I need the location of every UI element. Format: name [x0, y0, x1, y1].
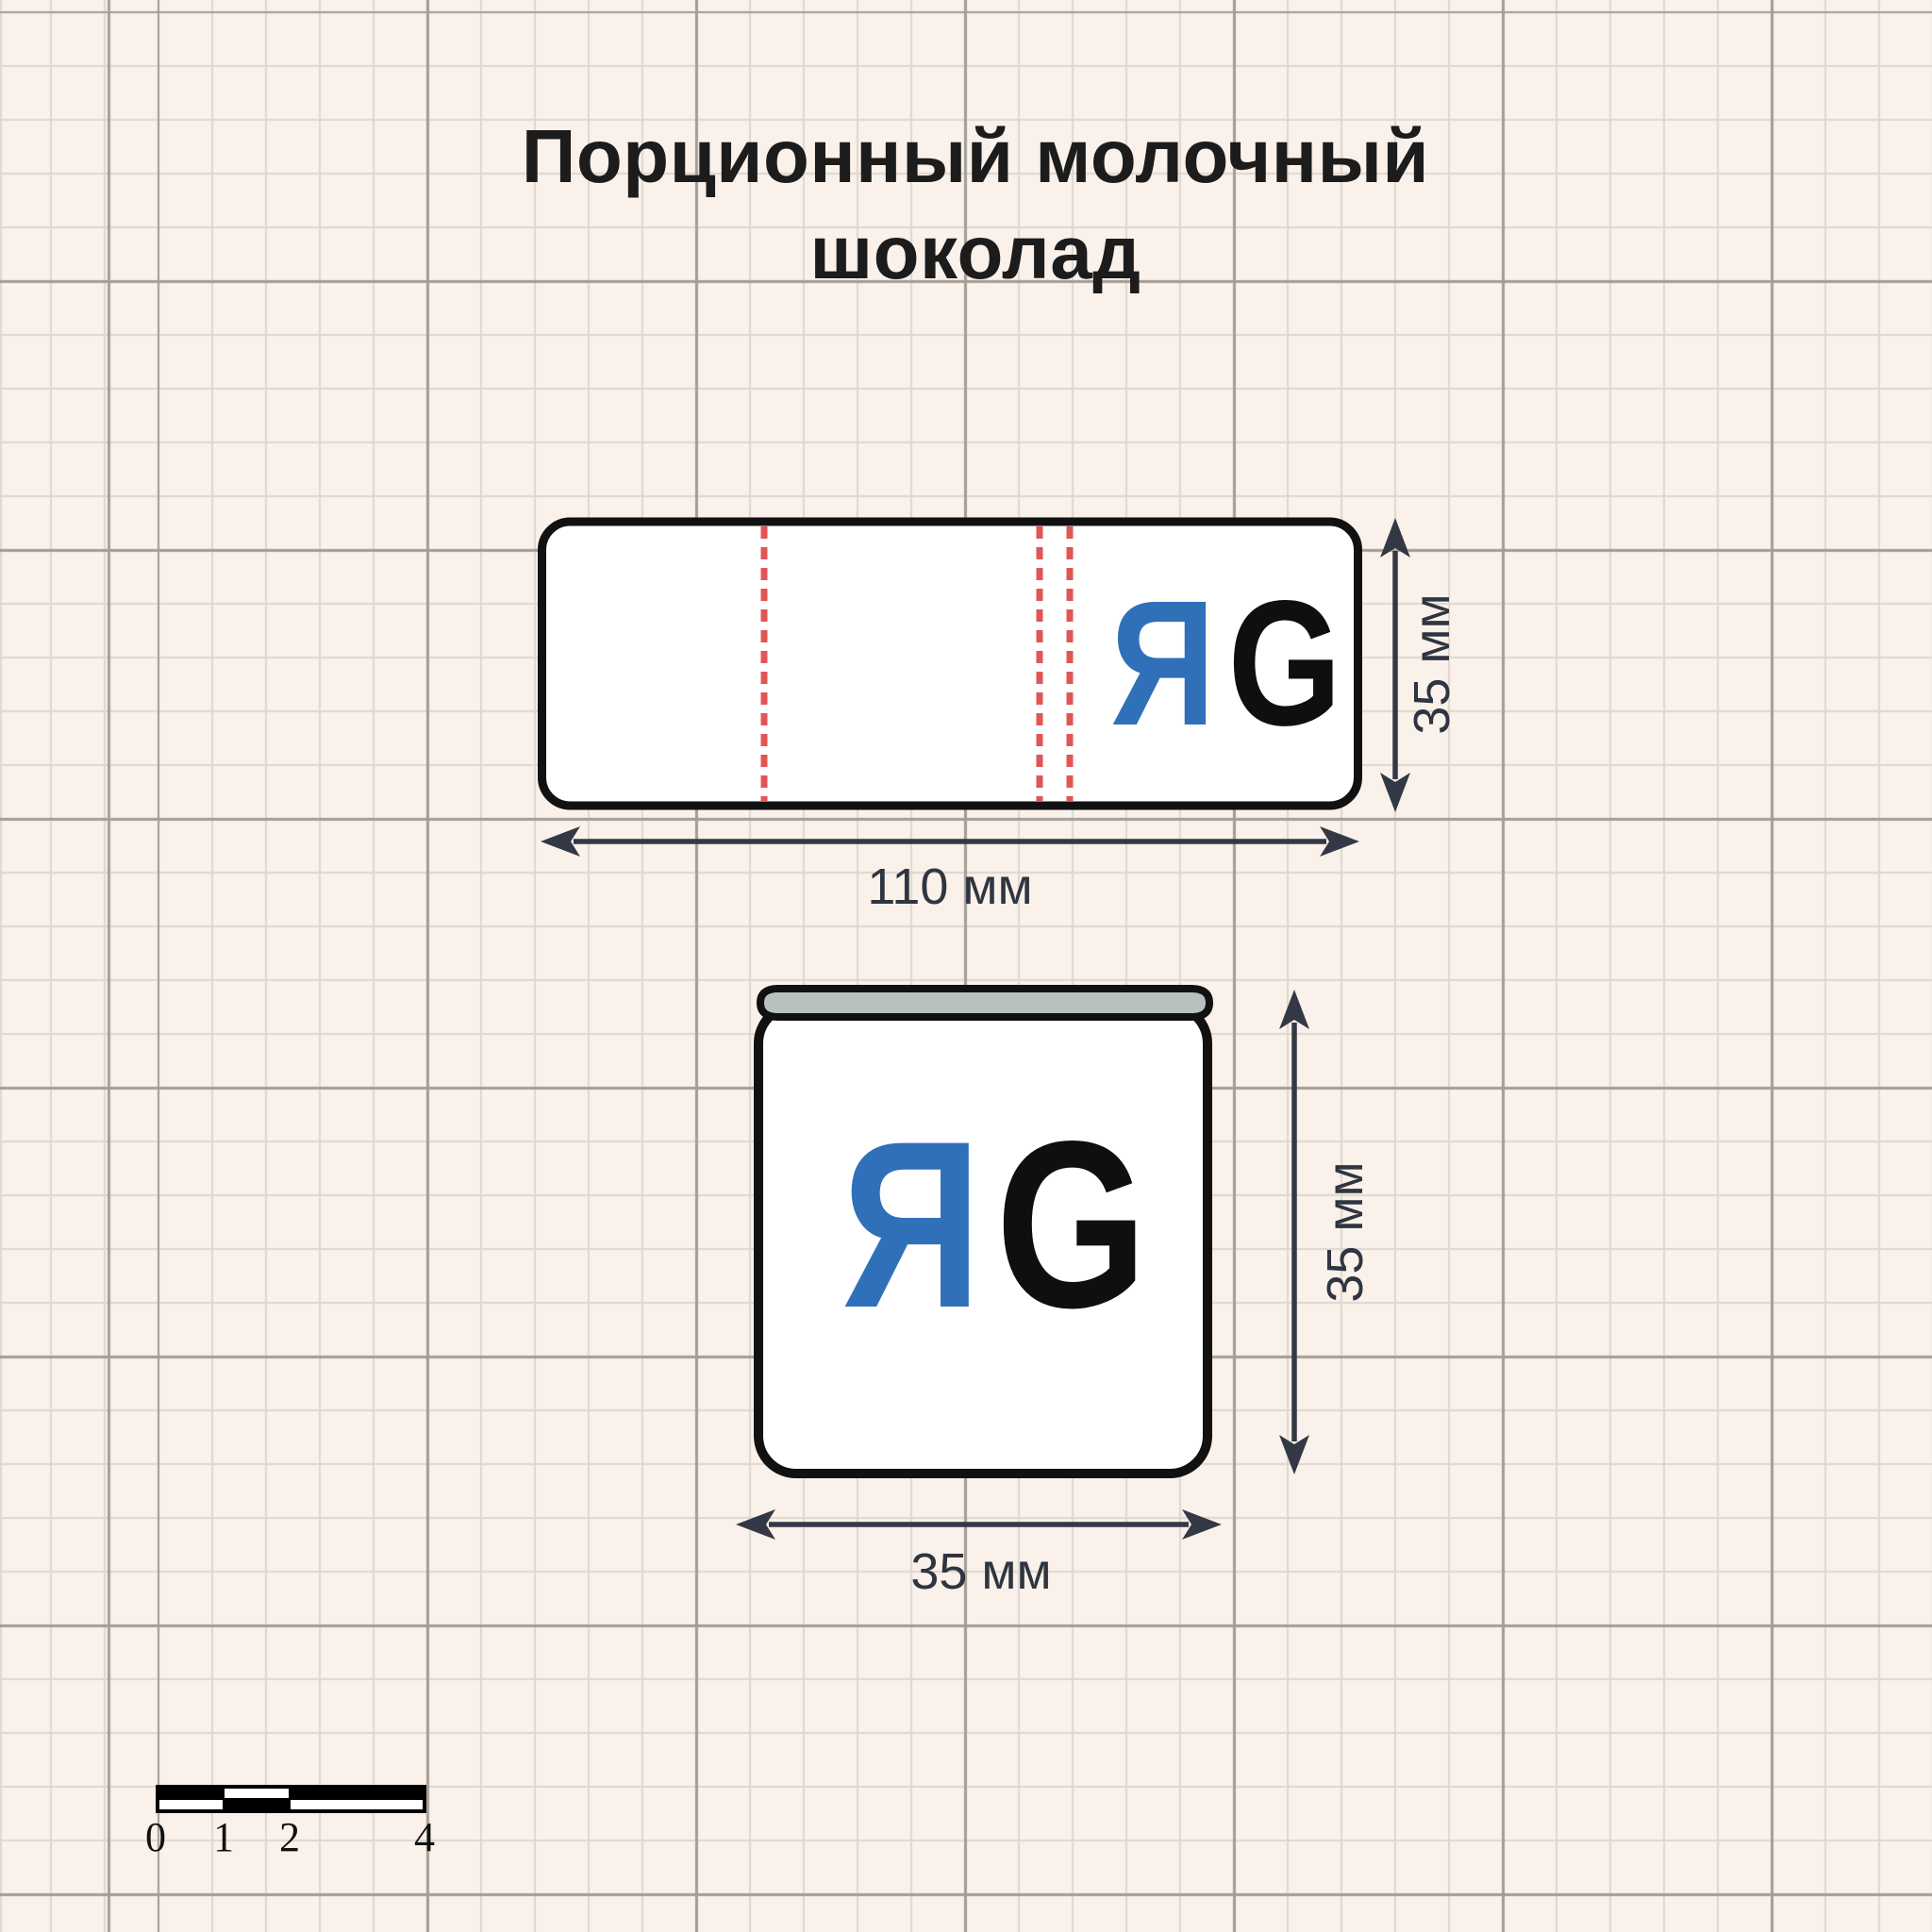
piece-height-label: 35 мм: [1317, 1161, 1374, 1302]
scale-bar-segment: [290, 1787, 425, 1799]
wrapper-logo-letter-ya: Я: [1110, 563, 1215, 762]
wrapper-width-dimension: 110 мм: [541, 826, 1359, 915]
scale-bar-labels: 0 1 2 4: [145, 1814, 435, 1860]
piece-height-dimension: 35 мм: [1279, 990, 1374, 1474]
wrapper-height-label: 35 мм: [1404, 593, 1460, 734]
piece-top-fold: [760, 989, 1209, 1017]
wrapper-width-label: 110 мм: [867, 858, 1032, 915]
diagram-svg: Я G 35 мм 110 мм Я: [0, 0, 1932, 1932]
piece-width-label: 35 мм: [910, 1543, 1051, 1600]
piece-logo-letter-g: G: [995, 1091, 1147, 1357]
scale-bar: 0 1 2 4: [145, 1787, 435, 1860]
wrapper-figure: Я G 35 мм 110 мм: [541, 518, 1460, 915]
scale-bar-segment: [224, 1799, 290, 1811]
scale-tick-0: 0: [145, 1814, 166, 1860]
wrapper-height-dimension: 35 мм: [1380, 518, 1460, 812]
piece-figure: Я G 35 мм 35 мм: [736, 989, 1374, 1600]
scale-bar-segment: [158, 1787, 224, 1799]
piece-logo-letter-ya: Я: [841, 1091, 982, 1357]
scale-tick-1: 1: [213, 1814, 234, 1860]
piece-width-dimension: 35 мм: [736, 1509, 1222, 1600]
scale-tick-2: 2: [279, 1814, 300, 1860]
scale-tick-4: 4: [414, 1814, 435, 1860]
wrapper-logo-letter-g: G: [1228, 563, 1342, 762]
spec-sheet-canvas: Порционный молочный шоколад Я G 35 мм: [0, 0, 1932, 1932]
